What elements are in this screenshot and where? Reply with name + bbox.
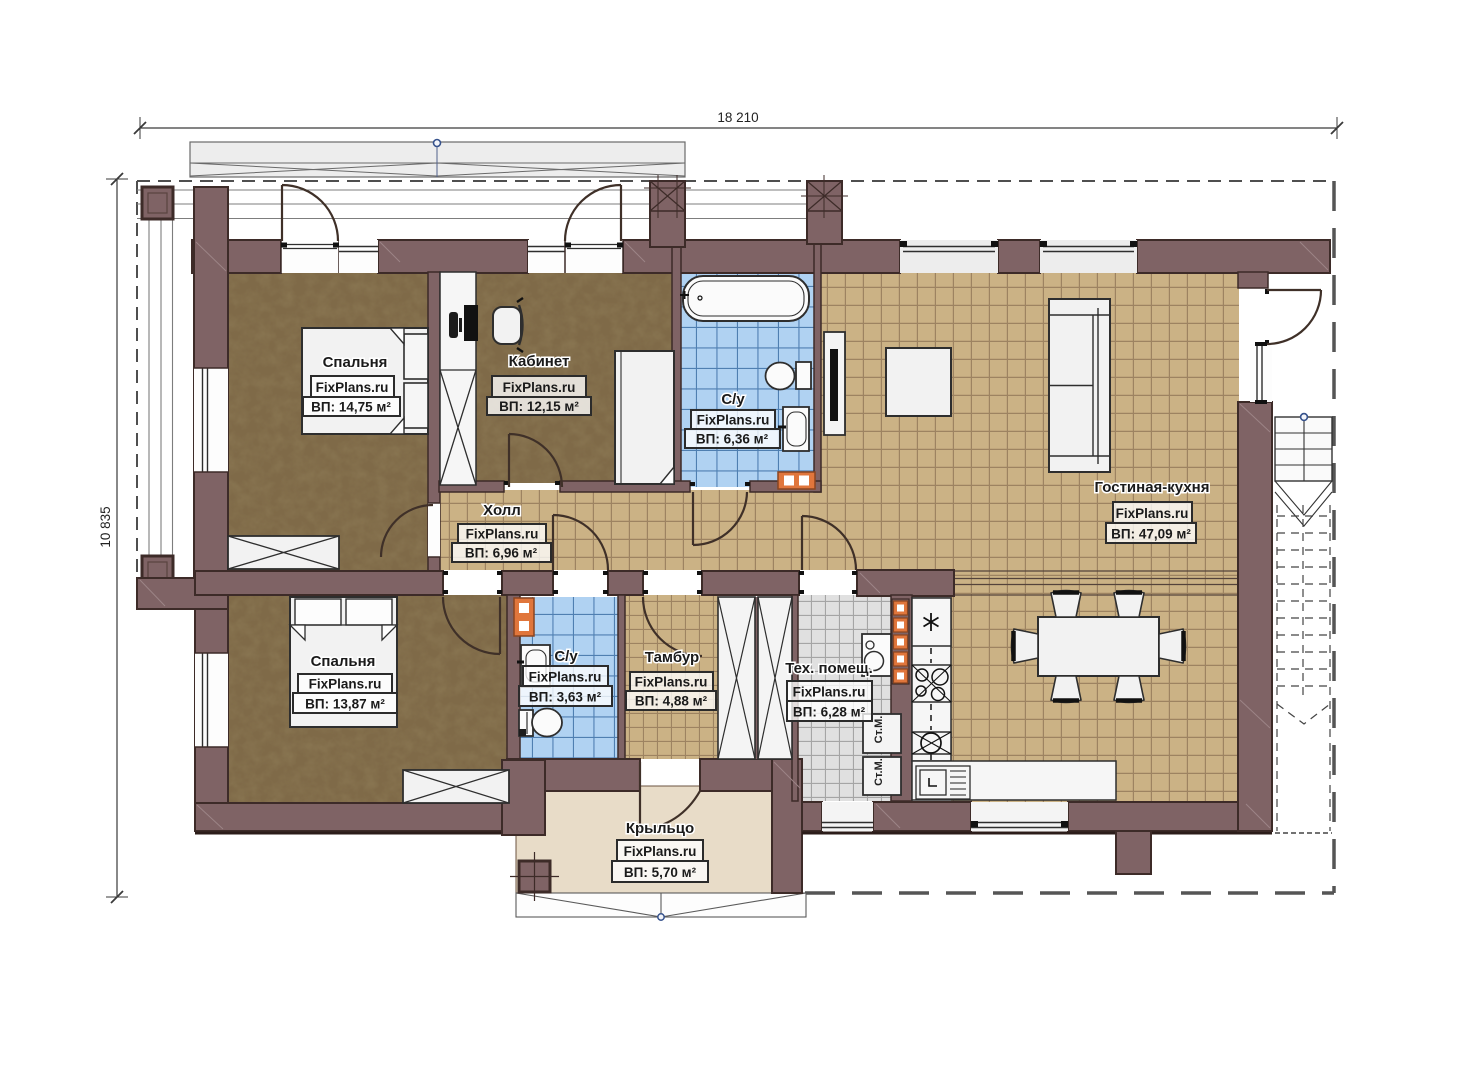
svg-text:Крыльцо: Крыльцо <box>626 820 694 837</box>
svg-text:Тамбур: Тамбур <box>645 649 699 666</box>
svg-text:10 835: 10 835 <box>98 506 113 547</box>
svg-text:FixPlans.ru: FixPlans.ru <box>503 380 576 395</box>
svg-text:ВП: 3,63 м²: ВП: 3,63 м² <box>529 690 602 705</box>
svg-text:FixPlans.ru: FixPlans.ru <box>316 380 389 395</box>
svg-text:Гостиная-кухня: Гостиная-кухня <box>1095 479 1210 496</box>
svg-text:ВП: 5,70 м²: ВП: 5,70 м² <box>624 865 697 880</box>
svg-text:FixPlans.ru: FixPlans.ru <box>697 413 770 428</box>
svg-text:ВП: 4,88 м²: ВП: 4,88 м² <box>635 694 708 709</box>
svg-text:ВП: 47,09 м²: ВП: 47,09 м² <box>1111 527 1191 542</box>
svg-text:FixPlans.ru: FixPlans.ru <box>529 670 602 685</box>
svg-text:Ст.М.: Ст.М. <box>873 716 885 744</box>
svg-text:ВП: 12,15 м²: ВП: 12,15 м² <box>499 399 579 414</box>
svg-text:С/у: С/у <box>554 648 578 665</box>
svg-text:С/у: С/у <box>721 391 745 408</box>
svg-text:ВП: 6,36 м²: ВП: 6,36 м² <box>696 432 769 447</box>
svg-text:ВП: 6,28 м²: ВП: 6,28 м² <box>793 705 866 720</box>
svg-text:FixPlans.ru: FixPlans.ru <box>466 527 539 542</box>
svg-text:ВП: 6,96 м²: ВП: 6,96 м² <box>465 546 538 561</box>
svg-text:FixPlans.ru: FixPlans.ru <box>1116 506 1189 521</box>
svg-text:FixPlans.ru: FixPlans.ru <box>309 677 382 692</box>
svg-text:Холл: Холл <box>483 502 521 519</box>
svg-text:FixPlans.ru: FixPlans.ru <box>635 675 708 690</box>
svg-text:FixPlans.ru: FixPlans.ru <box>793 685 866 700</box>
svg-text:FixPlans.ru: FixPlans.ru <box>624 844 697 859</box>
svg-text:Ст.М.: Ст.М. <box>873 758 885 786</box>
svg-text:18 210: 18 210 <box>717 110 758 125</box>
svg-text:Спальня: Спальня <box>323 354 388 371</box>
svg-text:Тех. помещ.: Тех. помещ. <box>785 660 873 677</box>
svg-text:Кабинет: Кабинет <box>509 353 570 370</box>
svg-text:Спальня: Спальня <box>311 653 376 670</box>
svg-text:ВП: 14,75 м²: ВП: 14,75 м² <box>311 400 391 415</box>
svg-text:ВП: 13,87 м²: ВП: 13,87 м² <box>305 697 385 712</box>
